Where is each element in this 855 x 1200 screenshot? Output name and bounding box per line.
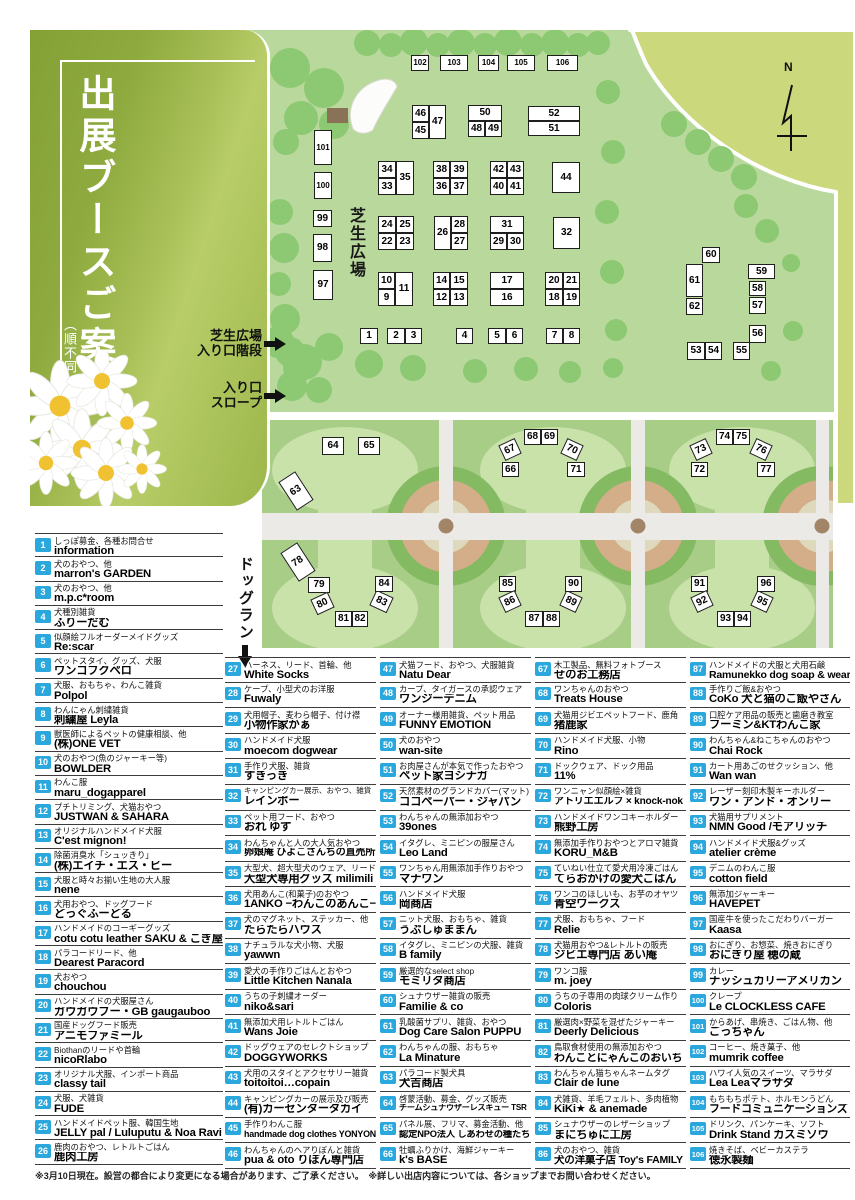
booth-name: Relie bbox=[554, 925, 686, 937]
list-item-53: 53わんちゃんの無添加おやつ39ones bbox=[380, 811, 531, 837]
booth-category: ハワイ人気のスイーツ、マラサダ bbox=[709, 1068, 850, 1078]
booth-category: ハンドメイド犬服、小物 bbox=[554, 735, 686, 745]
booth-number-badge: 84 bbox=[535, 1096, 551, 1110]
booth-category: ハンドメイドのコーギーグッズ bbox=[54, 923, 223, 933]
booth-text: ワンコのほしいも、お芋のオヤツ青空ワークス bbox=[554, 889, 686, 912]
booth-number-badge: 13 bbox=[35, 829, 51, 843]
booth-text: パネル展、フリマ、募金活動、他認定NPO法人 しあわせの種たち bbox=[399, 1119, 531, 1142]
map-booth-42: 42 bbox=[490, 161, 507, 178]
map-booth-13: 13 bbox=[450, 289, 468, 306]
booth-category: ワンコのほしいも、お芋のオヤツ bbox=[554, 889, 686, 899]
booth-name: Clair de lune bbox=[554, 1078, 686, 1090]
booth-name: チームシュナウザーレスキュー TSR bbox=[399, 1104, 531, 1112]
booth-number-badge: 106 bbox=[690, 1147, 706, 1161]
dogrun-label-group: ドッグラン bbox=[232, 556, 258, 667]
booth-text: 愛犬の手作りごはんとおやつLittle Kitchen Nanala bbox=[244, 966, 376, 989]
map-booth-37: 37 bbox=[450, 178, 468, 195]
list-item-57: 57ニット犬服、おもちゃ、雑貨うぶしゅままん bbox=[380, 913, 531, 939]
map-booth-3: 3 bbox=[405, 328, 422, 344]
booth-text: 国産ドッグフード販売アニモファミール bbox=[54, 1020, 223, 1042]
map-booth-75: 75 bbox=[733, 429, 750, 445]
booth-number-badge: 1 bbox=[35, 538, 51, 552]
booth-text: パラコード製犬具犬吉商店 bbox=[399, 1068, 531, 1091]
booth-category: からあげ、串焼き、ごはん物、他 bbox=[709, 1017, 850, 1027]
map-booth-7: 7 bbox=[546, 328, 563, 344]
booth-category: わんちゃんの服、おもちゃ bbox=[399, 1042, 531, 1052]
list-item-101: 101からあげ、串焼き、ごはん物、他ごっちゃん bbox=[690, 1015, 850, 1041]
booth-number-badge: 80 bbox=[535, 994, 551, 1008]
map-booth-95: 95 bbox=[750, 590, 773, 613]
list-item-8: 8わんにゃん刺繍雑貨刺繍屋 Leyla bbox=[35, 703, 223, 727]
slope-label-line2: スロープ bbox=[211, 395, 262, 410]
booth-name: 39ones bbox=[399, 822, 531, 834]
booth-text: 似顔絵フルオーダーメイドグッズRe:scar bbox=[54, 632, 223, 654]
booth-name: 1ANKO −わんこのあんこ− bbox=[244, 899, 376, 911]
map-booth-38: 38 bbox=[433, 161, 450, 178]
booth-text: カート用あごのせクッション、他Wan wan bbox=[709, 761, 850, 784]
list-item-62: 62わんちゃんの服、おもちゃLa Minature bbox=[380, 1041, 531, 1067]
booth-number-badge: 7 bbox=[35, 683, 51, 697]
booth-name: White Socks bbox=[244, 670, 376, 682]
booth-category: パネル展、フリマ、募金活動、他 bbox=[399, 1119, 531, 1129]
list-item-100: 100クレープLe CLOCKLESS CAFE bbox=[690, 990, 850, 1016]
booth-category: 犬服、おもちゃ、わんこ雑貨 bbox=[54, 680, 223, 690]
booth-text: 犬用おやつ、ドッグフードどっぐふーどる bbox=[54, 899, 223, 921]
map-booth-55: 55 bbox=[733, 342, 750, 360]
map-booth-25: 25 bbox=[396, 216, 414, 233]
booth-category: ハンドメイド犬服&グッズ bbox=[709, 838, 850, 848]
list-item-68: 68ワンちゃんのおやつTreats House bbox=[535, 683, 686, 709]
booth-number-badge: 46 bbox=[225, 1147, 241, 1161]
list-item-48: 48カープ、タイガースの承認ウェアワンジーデニム bbox=[380, 683, 531, 709]
booth-category: ハンドメイドの犬服と犬用石鹸 bbox=[709, 660, 850, 670]
booth-text: 獣医師によるペットの健康相談、他(株)ONE VET bbox=[54, 729, 223, 751]
list-item-15: 15犬服と時々お揃い生地の大人服nene bbox=[35, 873, 223, 897]
list-item-52: 52天然素材のグランドカバー(マット)ココペーパー・ジャパン bbox=[380, 785, 531, 811]
booth-number-badge: 47 bbox=[380, 662, 396, 676]
booth-name: Rino bbox=[554, 746, 686, 758]
booth-name: ココペーパー・ジャパン bbox=[399, 797, 531, 809]
booth-category: 口腔ケア用品の販売と歯磨き教室 bbox=[709, 710, 850, 720]
booth-text: 犬服と時々お揃い生地の大人服nene bbox=[54, 875, 223, 897]
booth-text: 厳選肉×野菜を混ぜたジャーキーDeerly Delicious bbox=[554, 1017, 686, 1040]
list-item-63: 63パラコード製犬具犬吉商店 bbox=[380, 1067, 531, 1093]
list-item-73: 73ハンドメイドワンコキーホルダー熊野工房 bbox=[535, 811, 686, 837]
booth-number-badge: 99 bbox=[690, 968, 706, 982]
map-booth-100: 100 bbox=[314, 172, 332, 199]
booth-name: Wans Joie bbox=[244, 1027, 376, 1039]
map-booth-106: 106 bbox=[547, 55, 578, 71]
booth-category: ハンドメイドワンコキーホルダー bbox=[554, 812, 686, 822]
map-booth-26: 26 bbox=[434, 216, 451, 250]
booth-text: イタグレ、ミニピンの服屋さんLeo Land bbox=[399, 838, 531, 861]
booth-category: 犬用あんこ(和菓子)のおやつ bbox=[244, 889, 376, 899]
booth-number-badge: 44 bbox=[225, 1096, 241, 1110]
booth-name: アトリエエルフ × knock-nok bbox=[554, 797, 686, 808]
list-item-23: 23オリジナル犬服、インポート商品classy tail bbox=[35, 1068, 223, 1092]
booth-number-badge: 8 bbox=[35, 707, 51, 721]
booth-number-badge: 50 bbox=[380, 738, 396, 752]
slope-label-line1: 入り口 bbox=[223, 380, 262, 395]
booth-text: オリジナル犬服、インポート商品classy tail bbox=[54, 1069, 223, 1091]
list-item-44: 44キャンピングカーの展示及び販売(有)カーセンタータカイ bbox=[225, 1092, 376, 1118]
map-booth-72: 72 bbox=[691, 462, 708, 477]
booth-name: Natu Dear bbox=[399, 670, 531, 682]
list-item-6: 6ペットスタイ、グッズ、犬服ワンコフクペロ bbox=[35, 654, 223, 678]
booth-number-badge: 79 bbox=[535, 968, 551, 982]
booth-text: もちもちポテト、ホルモンうどんフードコミュニケーションズ bbox=[709, 1094, 850, 1117]
booth-category: パラコード製犬具 bbox=[399, 1068, 531, 1078]
booth-category: わんちゃん猫ちゃんネームタグ bbox=[554, 1068, 686, 1078]
booth-category: 犬用のスタイとアクセサリー雑貨 bbox=[244, 1068, 376, 1078]
booth-name: ガウガウブー・GB gaugauboo bbox=[54, 1007, 223, 1019]
booth-number-badge: 23 bbox=[35, 1072, 51, 1086]
booth-category: カレー bbox=[709, 966, 850, 976]
list-item-30: 30ハンドメイド犬服moecom dogwear bbox=[225, 734, 376, 760]
booth-list-column-2: 27ハーネス、リード、首輪、他White Socks28ケープ、小型犬のお洋服F… bbox=[225, 657, 376, 1169]
map-booth-36: 36 bbox=[433, 178, 450, 195]
map-booth-46: 46 bbox=[412, 105, 429, 122]
booth-category: 犬のおやつ(魚のジャーキー等) bbox=[54, 753, 223, 763]
list-item-87: 87ハンドメイドの犬服と犬用石鹸Ramunekko dog soap & wea… bbox=[690, 657, 850, 683]
booth-category: 焼きそば、ベビーカステラ bbox=[709, 1145, 850, 1155]
booth-number-badge: 88 bbox=[690, 687, 706, 701]
booth-number-badge: 57 bbox=[380, 917, 396, 931]
booth-category: オリジナル犬服、インポート商品 bbox=[54, 1069, 223, 1079]
list-item-42: 42ドッグウェアのセレクトショップDOGGYWORKS bbox=[225, 1041, 376, 1067]
booth-text: ニット犬服、おもちゃ、雑貨うぶしゅままん bbox=[399, 914, 531, 937]
booth-name: 刺繍屋 Leyla bbox=[54, 715, 223, 727]
booth-category: 犬用おやつ、ドッグフード bbox=[54, 899, 223, 909]
map-booth-71: 71 bbox=[567, 462, 585, 477]
list-item-81: 81厳選肉×野菜を混ぜたジャーキーDeerly Delicious bbox=[535, 1015, 686, 1041]
booth-text: カープ、タイガースの承認ウェアワンジーデニム bbox=[399, 684, 531, 707]
booth-number-badge: 17 bbox=[35, 926, 51, 940]
booth-text: ワンちゃん用無添加手作りおやつマナワン bbox=[399, 863, 531, 886]
map-booth-87: 87 bbox=[525, 611, 543, 627]
booth-text: うちの子刺繍オーダーniko&sari bbox=[244, 991, 376, 1014]
booth-category: ドッグウェアのセレクトショップ bbox=[244, 1042, 376, 1052]
map-booth-15: 15 bbox=[450, 272, 468, 289]
booth-number-badge: 10 bbox=[35, 756, 51, 770]
booth-name: フーミン&KTわんこ家 bbox=[709, 720, 850, 732]
list-item-91: 91カート用あごのせクッション、他Wan wan bbox=[690, 759, 850, 785]
list-item-31: 31手作り犬服、雑貨すきっき bbox=[225, 759, 376, 785]
booth-category: ペットスタイ、グッズ、犬服 bbox=[54, 656, 223, 666]
booth-number-badge: 58 bbox=[380, 943, 396, 957]
booth-name: ペット家ヨシナガ bbox=[399, 771, 531, 783]
list-item-71: 71ドックウェア、ドック用品11% bbox=[535, 759, 686, 785]
booth-text: クレープLe CLOCKLESS CAFE bbox=[709, 991, 850, 1014]
booth-name: ふりーだむ bbox=[54, 618, 223, 630]
booth-number-badge: 68 bbox=[535, 687, 551, 701]
booth-name: Lea Leaマラサダ bbox=[709, 1078, 850, 1090]
booth-name: cotu cotu leather SAKU & こぎ屋 bbox=[54, 934, 223, 946]
booth-text: ハンドメイドペット服、韓国生地JELLY pal / Luluputu & No… bbox=[54, 1118, 223, 1140]
list-item-104: 104もちもちポテト、ホルモンうどんフードコミュニケーションズ bbox=[690, 1092, 850, 1118]
booth-category: 除菌消臭水「シュッきり」 bbox=[54, 850, 223, 860]
list-item-105: 105ドリンク、パンケーキ、ソフトDrink Stand カスミソウ bbox=[690, 1118, 850, 1144]
map-booth-14: 14 bbox=[433, 272, 450, 289]
booth-number-badge: 27 bbox=[225, 662, 241, 676]
list-item-75: 75ていねい仕立て愛犬用冷凍ごはんてらおかけの愛犬ごはん bbox=[535, 862, 686, 888]
map-booth-24: 24 bbox=[378, 216, 396, 233]
booth-name: (有)カーセンタータカイ bbox=[244, 1104, 376, 1116]
booth-name: marron's GARDEN bbox=[54, 569, 223, 581]
booth-category: カープ、タイガースの承認ウェア bbox=[399, 684, 531, 694]
map-booth-50: 50 bbox=[468, 105, 502, 121]
booth-number-badge: 87 bbox=[690, 662, 706, 676]
booth-text: わんちゃんのヘアりぼんと雑貨pua & oto りぼん専門店 bbox=[244, 1145, 376, 1168]
booth-name: Familie & co bbox=[399, 1002, 531, 1014]
map-booth-98: 98 bbox=[313, 234, 332, 262]
map-booth-103: 103 bbox=[440, 55, 468, 71]
map-booth-102: 102 bbox=[411, 55, 429, 71]
map-booth-35: 35 bbox=[396, 161, 414, 195]
booth-number-badge: 53 bbox=[380, 815, 396, 829]
booth-category: 犬猫用おやつ&レトルトの販売 bbox=[554, 940, 686, 950]
booth-name: わんことにゃんこのおいち bbox=[554, 1053, 686, 1064]
booth-text: 犬のマグネット、ステッカー、他たらたらハウス bbox=[244, 914, 376, 937]
booth-text: 犬猫用サプリメントNMN Good /モアリッチ bbox=[709, 812, 850, 835]
list-item-85: 85シュナウザーのレザーショップまにちゅに工房 bbox=[535, 1118, 686, 1144]
booth-number-badge: 104 bbox=[690, 1096, 706, 1110]
list-item-56: 56ハンドメイド犬服岡商店 bbox=[380, 887, 531, 913]
booth-category: 犬服、犬雑貨 bbox=[54, 1093, 223, 1103]
booth-number-badge: 59 bbox=[380, 968, 396, 982]
booth-name: k's BASE bbox=[399, 1155, 531, 1167]
booth-name: JUSTWAN & SAHARA bbox=[54, 812, 223, 824]
booth-category: わんちゃんと人の大人気おやつ bbox=[244, 838, 376, 848]
booth-category: カート用あごのせクッション、他 bbox=[709, 761, 850, 771]
booth-text: しっぽ募金、各種お問合せinformation bbox=[54, 536, 223, 557]
booth-name: モミリタ商店 bbox=[399, 976, 531, 988]
booth-category: わんちゃん&ねこちゃんのおやつ bbox=[709, 735, 850, 745]
booth-name: Kaasa bbox=[709, 925, 850, 937]
list-item-11: 11わんこ服maru_dogapparel bbox=[35, 776, 223, 800]
booth-name: BOWLDER bbox=[54, 764, 223, 776]
map-booth-67: 67 bbox=[498, 438, 521, 461]
booth-category: ドックウェア、ドック用品 bbox=[554, 761, 686, 771]
list-item-94: 94ハンドメイド犬服&グッズatelier crème bbox=[690, 836, 850, 862]
booth-name: moecom dogwear bbox=[244, 746, 376, 758]
booth-number-badge: 85 bbox=[535, 1122, 551, 1136]
booth-text: 手作りわんこ服handmade dog clothes YONYON bbox=[244, 1119, 376, 1142]
map-booth-61: 61 bbox=[686, 264, 703, 297]
list-item-39: 39愛犬の手作りごはんとおやつLittle Kitchen Nanala bbox=[225, 964, 376, 990]
list-item-67: 67木工製品、無料フォトブースせのお工務店 bbox=[535, 657, 686, 683]
list-item-40: 40うちの子刺繍オーダーniko&sari bbox=[225, 990, 376, 1016]
booth-text: 国産牛を使ったこだわりバーガーKaasa bbox=[709, 914, 850, 937]
map-booth-43: 43 bbox=[507, 161, 524, 178]
list-item-7: 7犬服、おもちゃ、わんこ雑貨Polpol bbox=[35, 679, 223, 703]
booth-category: 手作りご飯&おやつ bbox=[709, 684, 850, 694]
list-item-74: 74無添加手作りおやつとアロマ雑貨KORU_M&B bbox=[535, 836, 686, 862]
booth-name: nene bbox=[54, 885, 223, 897]
booth-name: m.p.c*room bbox=[54, 593, 223, 605]
map-booth-89: 89 bbox=[559, 590, 582, 613]
booth-category: 犬用帽子、麦わら帽子、付け襟 bbox=[244, 710, 376, 720]
dogrun-label: ドッグラン bbox=[237, 556, 253, 641]
booth-name: (株)ONE VET bbox=[54, 739, 223, 751]
map-booth-90: 90 bbox=[565, 576, 582, 592]
list-item-89: 89口腔ケア用品の販売と歯磨き教室フーミン&KTわんこ家 bbox=[690, 708, 850, 734]
booth-text: 厳選的なselect shopモミリタ商店 bbox=[399, 966, 531, 989]
list-item-43: 43犬用のスタイとアクセサリー雑貨toitoitoi…copain bbox=[225, 1067, 376, 1093]
booth-number-badge: 105 bbox=[690, 1122, 706, 1136]
booth-category: もちもちポテト、ホルモンうどん bbox=[709, 1094, 850, 1104]
booth-name: 卵娘庵 ひよこさんちの直売所 bbox=[244, 848, 376, 859]
list-item-17: 17ハンドメイドのコーギーグッズcotu cotu leather SAKU &… bbox=[35, 922, 223, 946]
booth-text: ハンドメイド犬服、小物Rino bbox=[554, 735, 686, 758]
map-booth-52: 52 bbox=[528, 106, 580, 121]
map-booth-19: 19 bbox=[563, 289, 580, 306]
booth-text: カレーナッシュカリーアメリカン bbox=[709, 966, 850, 989]
list-item-61: 61乳酸菌サプリ、雑貨、おやつDog Care Salon PUPPU bbox=[380, 1015, 531, 1041]
list-item-38: 38ナチュラルな犬小物、犬服yawwn bbox=[225, 939, 376, 965]
map-booth-53: 53 bbox=[687, 342, 705, 360]
booth-number-badge: 64 bbox=[380, 1096, 396, 1110]
list-item-70: 70ハンドメイド犬服、小物Rino bbox=[535, 734, 686, 760]
list-item-106: 106焼きそば、ベビーカステラ徳永製麺 bbox=[690, 1143, 850, 1169]
booth-text: ハワイ人気のスイーツ、マラサダLea Leaマラサダ bbox=[709, 1068, 850, 1091]
booth-number-badge: 82 bbox=[535, 1045, 551, 1059]
list-item-35: 35大型犬、超大型犬のウェア、リード大型犬専用グッズ milimili bbox=[225, 862, 376, 888]
booth-category: 犬猫用ジビエペットフード、鹿角 bbox=[554, 710, 686, 720]
list-item-54: 54イタグレ、ミニピンの服屋さんLeo Land bbox=[380, 836, 531, 862]
booth-number-badge: 65 bbox=[380, 1122, 396, 1136]
map-booth-93: 93 bbox=[717, 611, 734, 627]
slope-arrow-icon bbox=[264, 389, 286, 403]
booth-name: Fuwaly bbox=[244, 694, 376, 706]
booth-text: オーナー様用雑貨、ペット用品FUNNY EMOTION bbox=[399, 710, 531, 733]
booth-number-badge: 60 bbox=[380, 994, 396, 1008]
booth-number-badge: 3 bbox=[35, 586, 51, 600]
booth-number-badge: 22 bbox=[35, 1047, 51, 1061]
map-booth-69: 69 bbox=[541, 429, 558, 445]
map-booth-2: 2 bbox=[387, 328, 405, 344]
booth-number-badge: 97 bbox=[690, 917, 706, 931]
booth-name: Re:scar bbox=[54, 642, 223, 654]
booth-category: ハンドメイドの犬服屋さん bbox=[54, 996, 223, 1006]
booth-text: わんこ服maru_dogapparel bbox=[54, 777, 223, 799]
booth-category: クレープ bbox=[709, 991, 850, 1001]
booth-category: 国産牛を使ったこだわりバーガー bbox=[709, 914, 850, 924]
booth-text: 犬猫用ジビエペットフード、鹿角猪鹿家 bbox=[554, 710, 686, 733]
booth-category: 手作り犬服、雑貨 bbox=[244, 761, 376, 771]
booth-category: ニット犬服、おもちゃ、雑貨 bbox=[399, 914, 531, 924]
booth-number-badge: 91 bbox=[690, 763, 706, 777]
booth-text: ケープ、小型犬のお洋服Fuwaly bbox=[244, 684, 376, 707]
booth-text: 犬服、おもちゃ、フードRelie bbox=[554, 914, 686, 937]
booth-text: シュナウザー雑貨の販売Familie & co bbox=[399, 991, 531, 1014]
booth-number-badge: 67 bbox=[535, 662, 551, 676]
booth-text: コーヒー、焼き菓子、他mumrik coffee bbox=[709, 1042, 850, 1065]
list-item-98: 98おにぎり、お惣菜、焼きおにぎりおにぎり屋 穂の蔵 bbox=[690, 939, 850, 965]
booth-number-badge: 19 bbox=[35, 974, 51, 988]
booth-text: 犬のおやつ、他marron's GARDEN bbox=[54, 559, 223, 581]
booth-name: ジビエ専門店 あい庵 bbox=[554, 950, 686, 962]
booth-name: Dog Care Salon PUPPU bbox=[399, 1027, 531, 1039]
list-item-36: 36犬用あんこ(和菓子)のおやつ1ANKO −わんこのあんこ− bbox=[225, 887, 376, 913]
booth-category: 犬のおやつ bbox=[399, 735, 531, 745]
map-booth-27: 27 bbox=[451, 233, 468, 250]
booth-text: ワンコ服m. joey bbox=[554, 966, 686, 989]
map-booth-21: 21 bbox=[563, 272, 580, 289]
map-booth-49: 49 bbox=[485, 121, 502, 137]
booth-text: ていねい仕立て愛犬用冷凍ごはんてらおかけの愛犬ごはん bbox=[554, 863, 686, 886]
booth-text: 鹿肉のおやつ、レトルトごはん鹿肉工房 bbox=[54, 1142, 223, 1164]
list-item-46: 46わんちゃんのヘアりぼんと雑貨pua & oto りぼん専門店 bbox=[225, 1143, 376, 1169]
map-booth-105: 105 bbox=[507, 55, 535, 71]
booth-category: しっぽ募金、各種お問合せ bbox=[54, 536, 223, 546]
booth-name: atelier crème bbox=[709, 848, 850, 860]
booth-number-badge: 55 bbox=[380, 866, 396, 880]
map-booth-1: 1 bbox=[360, 328, 378, 344]
map-booth-32: 32 bbox=[553, 217, 580, 249]
booth-name: Wan wan bbox=[709, 771, 850, 783]
list-item-93: 93犬猫用サプリメントNMN Good /モアリッチ bbox=[690, 811, 850, 837]
list-item-66: 66牡蠣ふりかけ、海鮮ジャーキーk's BASE bbox=[380, 1143, 531, 1169]
list-item-49: 49オーナー様用雑貨、ペット用品FUNNY EMOTION bbox=[380, 708, 531, 734]
booth-category: 犬のおやつ、他 bbox=[54, 583, 223, 593]
booth-text: 犬猫用おやつ&レトルトの販売ジビエ専門店 あい庵 bbox=[554, 940, 686, 963]
booth-text: シュナウザーのレザーショップまにちゅに工房 bbox=[554, 1119, 686, 1142]
booth-text: わんにゃん刺繍雑貨刺繍屋 Leyla bbox=[54, 705, 223, 727]
booth-list-column-4: 67木工製品、無料フォトブースせのお工務店68ワンちゃんのおやつTreats H… bbox=[535, 657, 686, 1169]
booth-category: 国産ドッグフード販売 bbox=[54, 1020, 223, 1030]
list-item-28: 28ケープ、小型犬のお洋服Fuwaly bbox=[225, 683, 376, 709]
booth-name: m. joey bbox=[554, 976, 686, 988]
booth-category: 犬種別雑貨 bbox=[54, 607, 223, 617]
booth-text: わんちゃん猫ちゃんネームタグClair de lune bbox=[554, 1068, 686, 1091]
list-item-103: 103ハワイ人気のスイーツ、マラサダLea Leaマラサダ bbox=[690, 1067, 850, 1093]
booth-category: ペット用フード、おやつ bbox=[244, 812, 376, 822]
booth-name: Le CLOCKLESS CAFE bbox=[709, 1002, 850, 1014]
booth-number-badge: 83 bbox=[535, 1071, 551, 1085]
list-item-76: 76ワンコのほしいも、お芋のオヤツ青空ワークス bbox=[535, 887, 686, 913]
map-booth-63: 63 bbox=[278, 471, 313, 510]
booth-category: レーザー刻印木製キーホルダー bbox=[709, 786, 850, 796]
map-booth-101: 101 bbox=[314, 130, 332, 165]
booth-name: classy tail bbox=[54, 1079, 223, 1091]
booth-number-badge: 35 bbox=[225, 866, 241, 880]
booth-number-badge: 26 bbox=[35, 1144, 51, 1158]
booth-category: 天然素材のグランドカバー(マット) bbox=[399, 786, 531, 796]
map-booth-94: 94 bbox=[734, 611, 751, 627]
booth-number-badge: 32 bbox=[225, 789, 241, 803]
booth-number-badge: 45 bbox=[225, 1122, 241, 1136]
booth-name: たらたらハウス bbox=[244, 925, 376, 937]
map-booth-77: 77 bbox=[757, 462, 775, 477]
map-booth-22: 22 bbox=[378, 233, 396, 250]
booth-number-badge: 25 bbox=[35, 1120, 51, 1134]
map-booth-99: 99 bbox=[313, 210, 332, 227]
booth-category: 無添加犬用レトルトごはん bbox=[244, 1017, 376, 1027]
map-booth-33: 33 bbox=[378, 178, 396, 195]
list-item-4: 4犬種別雑貨ふりーだむ bbox=[35, 606, 223, 630]
booth-name: chouchou bbox=[54, 982, 223, 994]
booth-name: てらおかけの愛犬ごはん bbox=[554, 874, 686, 886]
booth-category: 無添加手作りおやつとアロマ雑貨 bbox=[554, 838, 686, 848]
booth-number-badge: 100 bbox=[690, 994, 706, 1008]
map-booth-80: 80 bbox=[310, 592, 334, 615]
booth-name: すきっき bbox=[244, 771, 376, 783]
booth-category: オーナー様用雑貨、ペット用品 bbox=[399, 710, 531, 720]
list-item-26: 26鹿肉のおやつ、レトルトごはん鹿肉工房 bbox=[35, 1140, 223, 1164]
map-booth-57: 57 bbox=[749, 297, 766, 314]
booth-category: シュナウザー雑貨の販売 bbox=[399, 991, 531, 1001]
